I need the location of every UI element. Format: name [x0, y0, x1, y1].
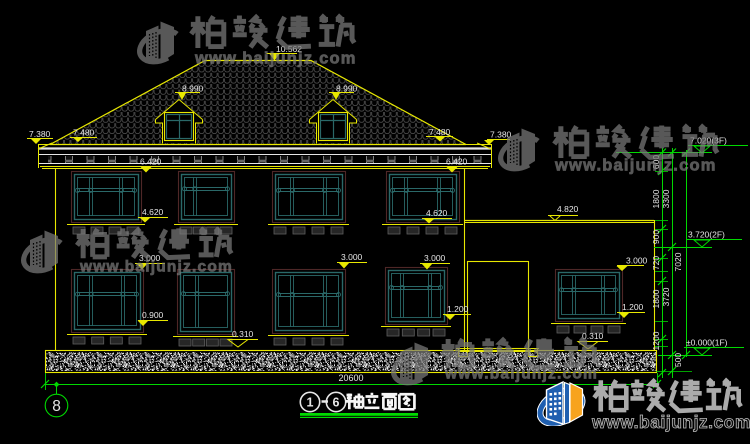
- svg-text:www.baijunjz.com: www.baijunjz.com: [194, 50, 357, 68]
- svg-text:www.baijunjz.com: www.baijunjz.com: [554, 157, 717, 175]
- svg-text:www.baijunjz.com: www.baijunjz.com: [79, 259, 233, 276]
